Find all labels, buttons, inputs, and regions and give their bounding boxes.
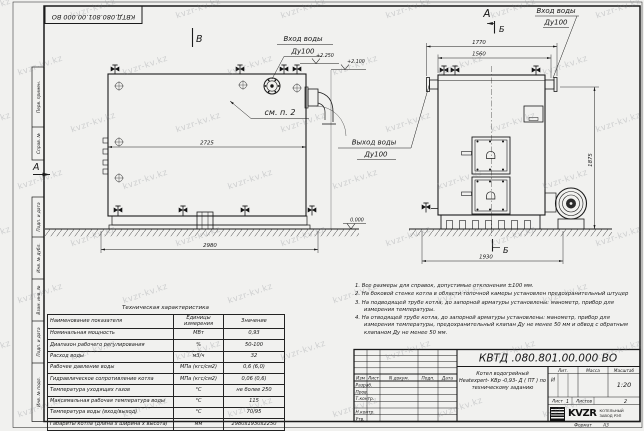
drain-valve-icon <box>422 203 431 213</box>
table-row: Номинальная мощностьМВт0,93 <box>48 329 285 340</box>
table-row: Рабочее давление водыМПа (кгс/см2)0,6 (6… <box>48 362 285 373</box>
logo-text: KVZR <box>568 408 596 419</box>
tech-table-title: Техническая характеристика <box>47 305 284 311</box>
scale-label: Масштаб <box>614 368 635 374</box>
valve-icon <box>293 65 302 75</box>
svg-text:Ду100: Ду100 <box>364 151 389 159</box>
view-marker-b: В <box>196 34 203 45</box>
control-panel <box>524 106 543 122</box>
format-value: А3 <box>602 422 609 428</box>
elev-zero: 0.000 <box>350 218 364 224</box>
top-stamp-number: КВТД.080.801.00.000 ВО <box>52 13 136 21</box>
valve-icon <box>451 66 460 76</box>
lower-door <box>462 177 511 214</box>
see-item-text: см. п. 2 <box>265 108 296 117</box>
tech-characteristics: Техническая характеристика Наименование … <box>47 305 284 431</box>
svg-text:Ду100: Ду100 <box>544 19 569 27</box>
valve-icon <box>440 66 449 76</box>
note-2: 2. На боковой стенке котла в области топ… <box>355 291 633 298</box>
sheet-label: Лист <box>551 399 563 405</box>
tech-col-unit: Единицы измерения <box>174 315 224 329</box>
svg-text:1560: 1560 <box>472 52 486 58</box>
note-1: 1. Все размеры для справок, допустимые о… <box>355 283 633 290</box>
tech-col-value: Значение <box>224 315 285 329</box>
outlet-label: Выход воды Ду100 <box>338 84 430 160</box>
upper-door <box>462 137 511 174</box>
position-mark-icon <box>114 173 124 183</box>
table-row: Гидравлическое сопротивление котлаМПа (к… <box>48 374 285 385</box>
table-row: Диапазон рабочего регулирования%50-100 <box>48 340 285 351</box>
valve-icon <box>111 65 120 75</box>
boiler-skid <box>112 216 307 225</box>
frame-label-sprav: Справ. № <box>36 133 42 154</box>
section-marker-a: А <box>32 162 40 173</box>
drain-valve-icon <box>308 206 317 216</box>
position-mark-icon <box>238 80 248 90</box>
skid-plate <box>109 225 310 229</box>
svg-text:Вход воды: Вход воды <box>536 7 576 15</box>
front-view: А Б Б Вход воды Ду100 Выход воды Ду100 <box>338 7 599 264</box>
manufacturer-logo: KVZR КОТЕЛЬНЫЙ ЗАВОД РЭП <box>550 406 638 421</box>
see-item-note: см. п. 2 <box>230 101 309 119</box>
inlet-text-1: Вход воды <box>283 35 323 43</box>
col-izm: Изм <box>356 375 365 381</box>
desc-line-2: Heatexpert- КВр -0,93- Д ( ПТ ) по <box>458 378 547 385</box>
fan-blower <box>545 188 587 229</box>
frame-label-inv-dubl: Инв. № дубл. <box>36 243 42 272</box>
table-row: Расход водым3/ч32 <box>48 351 285 362</box>
bottom-flange-box <box>197 212 213 229</box>
note-4: 4. На отводящей трубе котла, до запорной… <box>355 315 633 337</box>
scale-value: 1:20 <box>617 381 632 389</box>
elev-2250: +2.250 <box>316 53 334 59</box>
outlet-duct <box>305 70 346 229</box>
section-marker-b-bottom: Б <box>503 246 509 255</box>
svg-text:2725: 2725 <box>200 141 214 147</box>
tech-col-name: Наименование показателя <box>48 315 174 329</box>
mass-label: Масса <box>586 368 600 374</box>
format-label: Формат <box>574 422 592 428</box>
boiler-drawing-page: { "watermark": "kvzr-kv.kz", "stamp_top"… <box>0 0 644 430</box>
svg-text:1930: 1930 <box>479 255 493 261</box>
position-mark-icon <box>114 81 124 91</box>
col-podp: Подп. <box>421 375 434 381</box>
frame-label-podp2: Подп. и дата <box>36 327 42 357</box>
sheets-value: 2 <box>624 399 627 405</box>
table-row: Температура уходящих газов°Сне более 250 <box>48 385 285 396</box>
drain-valve-icon <box>179 206 188 216</box>
doc-number: КВТД .080.801.00.000 ВО <box>479 353 617 365</box>
tech-table: Наименование показателя Единицы измерени… <box>47 314 285 431</box>
sheet-value: 1 <box>566 399 569 405</box>
base-plinth <box>441 215 540 229</box>
logo-caption: КОТЕЛЬНЫЙ ЗАВОД РЭП <box>599 409 623 418</box>
position-mark-icon <box>114 137 124 147</box>
position-mark-icon <box>292 83 302 93</box>
notes-block: 1. Все размеры для справок, допустимые о… <box>355 283 633 338</box>
frame-label-perv: Перв. примен. <box>36 81 42 113</box>
frame-left-column: Перв. примен. Справ. № Подп. и дата Инв.… <box>32 67 44 422</box>
inlet-flange <box>264 78 280 94</box>
valve-icon <box>532 66 541 76</box>
drain-valve-icon <box>241 206 250 216</box>
kvzr-logo-icon <box>550 407 565 421</box>
frame-label-vzam: Взам. инв. № <box>36 285 42 315</box>
tech-header-row: Наименование показателя Единицы измерени… <box>48 315 285 329</box>
ground-line <box>45 229 612 236</box>
lit-value: И <box>551 378 555 384</box>
desc-line-1: Котел водогрейный <box>458 371 547 378</box>
frame-label-inv-podl: Инв. № подл. <box>36 377 42 407</box>
valve-icon <box>280 65 289 75</box>
col-ndoc: N докум. <box>389 375 409 381</box>
side-view: В А Вход воды Ду100 см. п. 2 +2.250 +2.1… <box>32 28 366 253</box>
inlet-text-2: Ду100 <box>291 48 316 56</box>
row-razrab: Разраб. <box>356 383 373 389</box>
row-prov: Пров. <box>356 389 369 395</box>
drain-valve-icon <box>114 206 123 216</box>
lit-label: Лит. <box>557 368 568 374</box>
section-marker-b-top: Б <box>499 25 505 34</box>
valve-icon <box>236 65 245 75</box>
frame-label-podp1: Подп. и дата <box>36 202 42 232</box>
svg-text:1875: 1875 <box>588 153 594 167</box>
elev-2100: +2.100 <box>347 59 365 65</box>
table-row: Максимальная рабочая температура воды°С1… <box>48 396 285 407</box>
row-utv: Утв. <box>356 416 365 422</box>
desc-line-3: техническому заданию <box>458 385 547 392</box>
doc-description: Котел водогрейный Heatexpert- КВр -0,93-… <box>458 371 547 391</box>
col-data: Дата <box>441 375 453 381</box>
row-tkontr: Т.контр. <box>356 396 375 402</box>
row-nkontr: Н.контр. <box>356 410 375 416</box>
dim-2725: 2725 <box>108 141 306 148</box>
col-list: Лист <box>367 375 379 381</box>
table-row: Температура воды (вход/выход)°С70/95 <box>48 408 285 419</box>
table-row: Габариты котла (длина х ширина х высота)… <box>48 419 285 430</box>
sheets-label: Листов <box>575 399 593 405</box>
svg-text:Выход воды: Выход воды <box>352 139 397 147</box>
svg-text:2980: 2980 <box>203 243 217 249</box>
note-3: 3. На подводящей трубе котла, до запорно… <box>355 300 633 315</box>
dim-1875: 1875 <box>560 87 599 229</box>
view-marker-a: А <box>482 8 490 20</box>
svg-text:1770: 1770 <box>472 40 486 46</box>
